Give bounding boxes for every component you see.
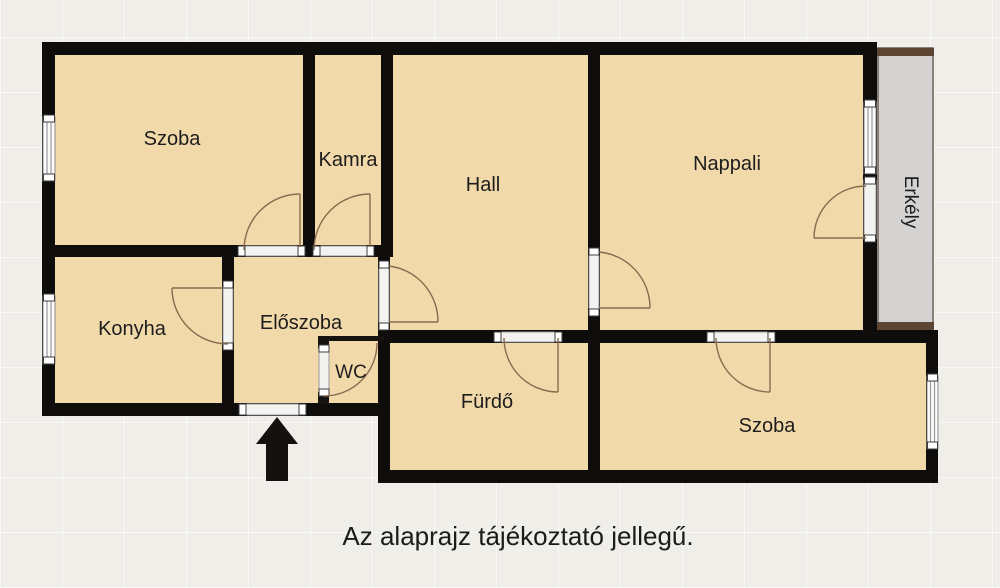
wall-szoba-kamra bbox=[303, 55, 315, 251]
wall-bottom-right bbox=[378, 470, 938, 483]
room-label-eloszoba: Előszoba bbox=[260, 312, 343, 334]
room-label-wc: WC bbox=[335, 362, 367, 383]
window-cap bbox=[865, 100, 876, 107]
door-cap bbox=[319, 345, 329, 352]
window-nappali-right bbox=[864, 100, 876, 174]
window-cap bbox=[928, 442, 938, 449]
door-cap bbox=[865, 235, 876, 242]
room-label-nappali: Nappali bbox=[693, 153, 761, 175]
door-cap bbox=[298, 246, 305, 256]
door-entrance bbox=[239, 404, 306, 415]
door-cap bbox=[319, 389, 329, 396]
entrance-arrow-icon bbox=[256, 417, 298, 481]
door-szoba1 bbox=[238, 246, 305, 256]
door-cap bbox=[379, 323, 389, 330]
room-label-hall: Hall bbox=[466, 174, 500, 196]
door-bar bbox=[223, 284, 233, 346]
door-cap bbox=[768, 332, 775, 342]
door-hall-nappali bbox=[589, 248, 599, 316]
door-bar bbox=[589, 251, 599, 312]
door-eloszoba-hall bbox=[379, 261, 389, 330]
floorplan-drawing: Szoba Kamra Hall Nappali Erkély Konyha E… bbox=[0, 0, 1000, 588]
room-label-furdo: Fürdő bbox=[461, 391, 513, 413]
wall-kamra-hall bbox=[381, 55, 393, 251]
door-cap bbox=[865, 177, 876, 184]
window-cap bbox=[44, 115, 55, 122]
wall-bottom-left bbox=[42, 403, 390, 416]
door-bar bbox=[379, 264, 389, 326]
door-cap bbox=[239, 404, 246, 415]
door-cap bbox=[299, 404, 306, 415]
window-cap bbox=[44, 174, 55, 181]
window-konyha-left bbox=[43, 294, 55, 364]
door-bar bbox=[710, 332, 772, 342]
window-bar bbox=[43, 296, 55, 364]
door-cap bbox=[589, 309, 599, 316]
door-cap bbox=[367, 246, 374, 256]
room-label-konyha: Konyha bbox=[98, 318, 167, 340]
door-bar bbox=[497, 332, 559, 342]
door-cap bbox=[494, 332, 501, 342]
window-bar bbox=[864, 102, 876, 174]
door-balcony bbox=[864, 177, 876, 242]
door-cap bbox=[379, 261, 389, 268]
window-cap bbox=[928, 374, 938, 381]
door-bar bbox=[319, 348, 329, 392]
door-kamra bbox=[313, 246, 374, 256]
door-konyha bbox=[223, 281, 233, 350]
room-label-szoba-1: Szoba bbox=[144, 128, 202, 150]
wall-furdo-szoba bbox=[588, 330, 600, 483]
window-cap bbox=[44, 294, 55, 301]
wall-lower-horizontal bbox=[390, 330, 938, 343]
window-szoba2-right bbox=[927, 374, 938, 449]
door-cap bbox=[223, 281, 233, 288]
room-label-szoba-2: Szoba bbox=[739, 415, 797, 437]
caption-text: Az alaprajz tájékoztató jellegű. bbox=[342, 521, 693, 551]
window-cap bbox=[44, 357, 55, 364]
door-bar bbox=[240, 246, 303, 256]
room-label-kamra: Kamra bbox=[319, 149, 379, 171]
door-bar bbox=[315, 246, 372, 256]
wall-top bbox=[42, 42, 877, 55]
door-wc bbox=[319, 345, 329, 396]
floorplan-canvas: Szoba Kamra Hall Nappali Erkély Konyha E… bbox=[0, 0, 1000, 588]
door-bar bbox=[242, 404, 303, 415]
door-cap bbox=[707, 332, 714, 342]
door-cap bbox=[589, 248, 599, 255]
window-szoba1-left bbox=[43, 115, 55, 181]
window-bar bbox=[927, 376, 938, 449]
balcony-trim-top bbox=[877, 48, 934, 56]
door-nappali-szoba2 bbox=[707, 332, 775, 342]
door-bar bbox=[864, 180, 876, 239]
window-cap bbox=[865, 167, 876, 174]
window-bar bbox=[43, 117, 55, 181]
room-label-erkely: Erkély bbox=[900, 176, 921, 229]
